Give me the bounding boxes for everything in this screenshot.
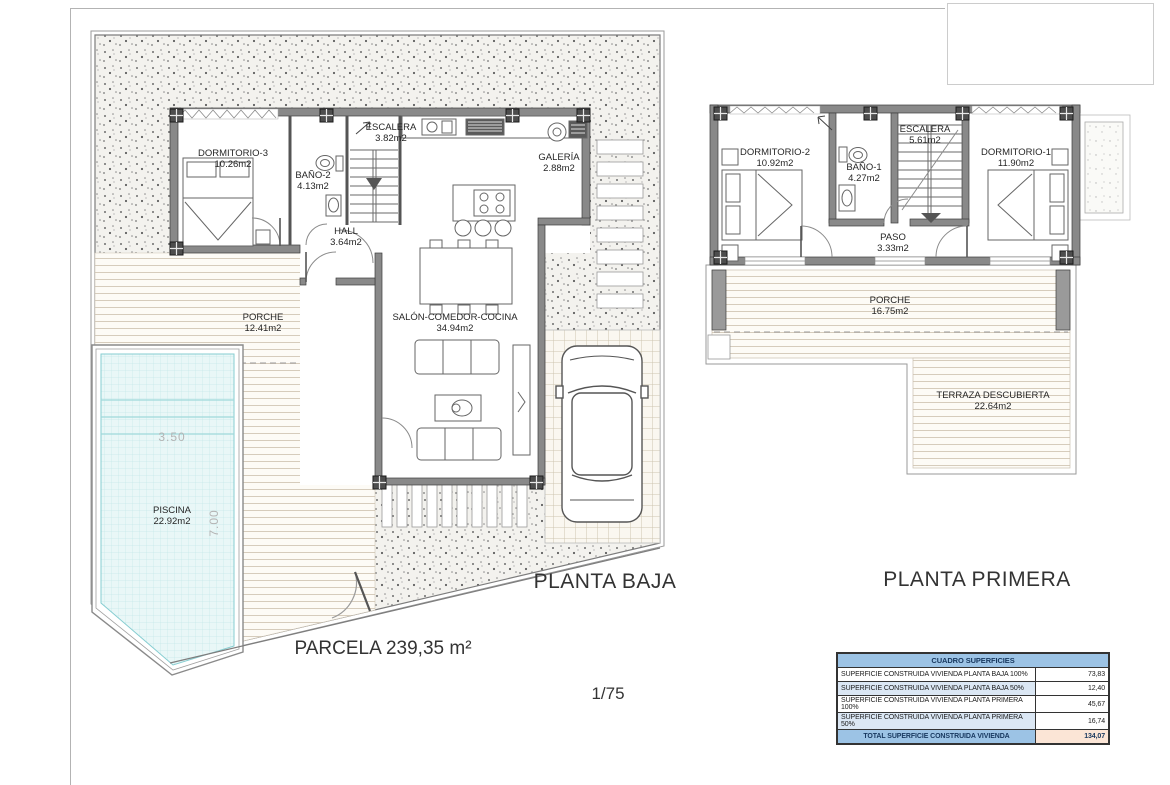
table-total-label: TOTAL SUPERFICIE CONSTRUIDA VIVIENDA: [837, 730, 1036, 745]
first-floor-title: PLANTA PRIMERA: [883, 568, 1071, 592]
table-total-value: 134,07: [1036, 730, 1110, 745]
parcel-area-label: PARCELA 239,35 m²: [294, 638, 471, 660]
table-header-row: CUADRO SUPERFICIES: [837, 653, 1109, 668]
surfaces-table: CUADRO SUPERFICIES SUPERFICIE CONSTRUIDA…: [836, 652, 1110, 745]
table-row-label: SUPERFICIE CONSTRUIDA VIVIENDA PLANTA BA…: [837, 668, 1036, 682]
pool-length-dim: 7.00: [207, 509, 221, 536]
drawing-scale: 1/75: [591, 684, 624, 704]
room-label-galeria: GALERÍA 2.88m2: [538, 152, 579, 174]
table-row: SUPERFICIE CONSTRUIDA VIVIENDA PLANTA BA…: [837, 682, 1109, 696]
table-row: SUPERFICIE CONSTRUIDA VIVIENDA PLANTA BA…: [837, 668, 1109, 682]
tv-unit: [513, 345, 530, 455]
side-roof-panel: [1078, 115, 1130, 220]
room-label-escalera-ff: ESCALERA 5.61m2: [900, 124, 951, 146]
room-label-porche-ff: PORCHE 16.75m2: [870, 295, 911, 317]
room-label-salon: SALÓN-COMEDOR-COCINA 34.94m2: [392, 312, 517, 334]
table-row: SUPERFICIE CONSTRUIDA VIVIENDA PLANTA PR…: [837, 696, 1109, 713]
plan-sheet: DORMITORIO-3 10.26m2 BAÑO-2 4.13m2 ESCAL…: [0, 0, 1170, 785]
table-row-label: SUPERFICIE CONSTRUIDA VIVIENDA PLANTA PR…: [837, 713, 1036, 730]
pool-width-dim: 3.50: [158, 430, 185, 444]
room-label-porche-gf: PORCHE 12.41m2: [243, 312, 284, 334]
room-label-bano2: BAÑO-2 4.13m2: [295, 170, 330, 192]
bedroom3-window: [178, 109, 278, 119]
table-row-label: SUPERFICIE CONSTRUIDA VIVIENDA PLANTA PR…: [837, 696, 1036, 713]
room-label-escalera-gf: ESCALERA 3.82m2: [366, 122, 417, 144]
table-total-row: TOTAL SUPERFICIE CONSTRUIDA VIVIENDA 134…: [837, 730, 1109, 745]
ground-floor-title: PLANTA BAJA: [534, 570, 677, 594]
table-row: SUPERFICIE CONSTRUIDA VIVIENDA PLANTA PR…: [837, 713, 1109, 730]
dining-table: [420, 240, 512, 314]
room-label-terraza: TERRAZA DESCUBIERTA 22.64m2: [936, 390, 1049, 412]
room-label-hall: HALL 3.64m2: [330, 226, 362, 248]
room-label-bano1: BAÑO-1 4.27m2: [846, 162, 881, 184]
car-icon: [556, 346, 648, 522]
kitchen-island: [453, 185, 515, 236]
table-row-value: 73,83: [1036, 668, 1110, 682]
room-label-paso: PASO 3.33m2: [877, 232, 909, 254]
table-row-value: 16,74: [1036, 713, 1110, 730]
room-label-dormitorio2: DORMITORIO-2 10.92m2: [740, 147, 810, 169]
porch-windows: [745, 257, 1050, 265]
room-label-dormitorio3: DORMITORIO-3 10.26m2: [198, 148, 268, 170]
ground-floor-plan: [70, 0, 670, 730]
table-row-value: 45,67: [1036, 696, 1110, 713]
room-label-dormitorio1: DORMITORIO-1 11.90m2: [981, 147, 1051, 169]
table-row-value: 12,40: [1036, 682, 1110, 696]
table-title: CUADRO SUPERFICIES: [837, 653, 1109, 668]
room-label-piscina: PISCINA 22.92m2: [153, 505, 191, 527]
terraza-descubierta: [913, 358, 1070, 468]
title-block-empty: [947, 3, 1154, 85]
table-row-label: SUPERFICIE CONSTRUIDA VIVIENDA PLANTA BA…: [837, 682, 1036, 696]
